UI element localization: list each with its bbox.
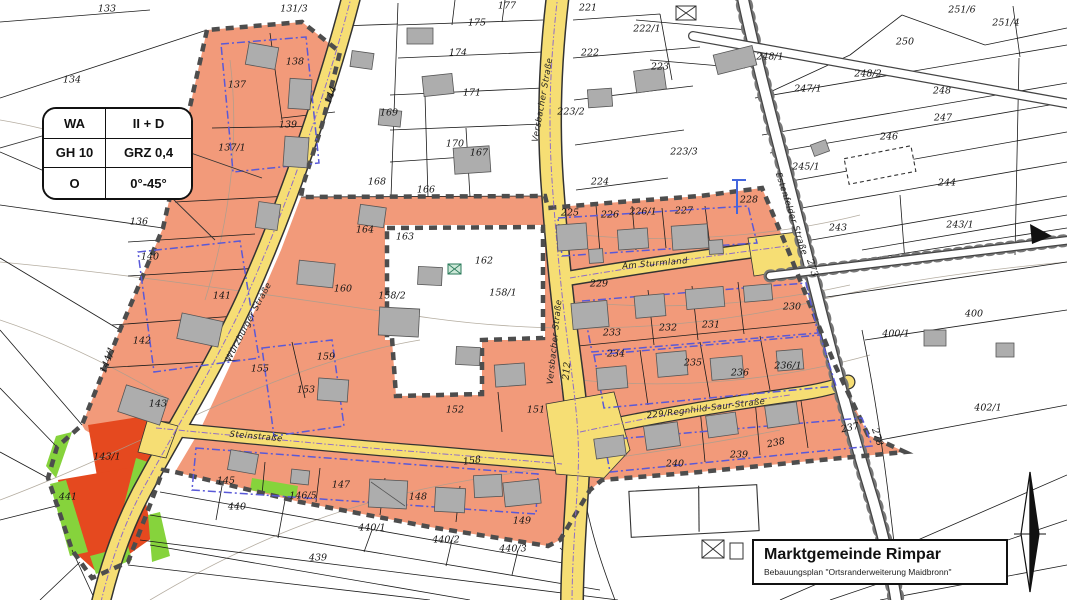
legend-open-construction: O xyxy=(44,168,106,198)
zoning-plan-map: 133134131/317717517417116917016716816622… xyxy=(0,0,1067,600)
legend-building-height: GH 10 xyxy=(44,139,106,169)
legend-zone-type: WA xyxy=(44,109,106,139)
plan-subtitle: Bebauungsplan "Ortsranderweiterung Maidb… xyxy=(764,567,996,577)
legend-storeys: II + D xyxy=(106,109,191,139)
legend-roof-pitch: 0°-45° xyxy=(106,168,191,198)
utility-box-icon xyxy=(448,264,461,274)
title-block: Marktgemeinde Rimpar Bebauungsplan "Orts… xyxy=(752,539,1008,585)
map-canvas xyxy=(0,0,1067,600)
substation-icon xyxy=(702,540,743,559)
marker-box-icon xyxy=(676,6,696,20)
legend-grz: GRZ 0,4 xyxy=(106,139,191,169)
legend-box: WA II + D GH 10 GRZ 0,4 O 0°-45° xyxy=(42,107,193,200)
municipality-title: Marktgemeinde Rimpar xyxy=(764,546,996,564)
